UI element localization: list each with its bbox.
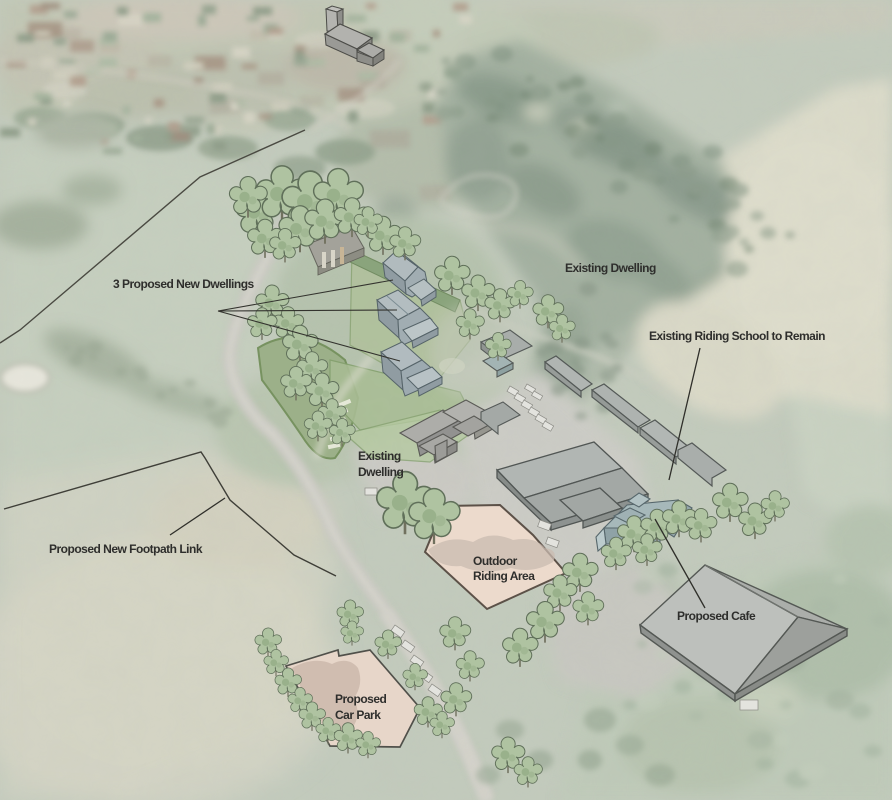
svg-text:Proposed: Proposed xyxy=(335,692,387,706)
svg-text:Dwelling: Dwelling xyxy=(358,465,404,479)
svg-text:Outdoor: Outdoor xyxy=(473,554,518,568)
svg-text:Proposed Cafe: Proposed Cafe xyxy=(677,609,756,623)
svg-text:Existing Dwelling: Existing Dwelling xyxy=(565,261,656,275)
svg-text:3 Proposed New Dwellings: 3 Proposed New Dwellings xyxy=(113,277,255,291)
svg-text:Car Park: Car Park xyxy=(335,708,381,722)
svg-text:Existing: Existing xyxy=(358,449,401,463)
svg-text:Proposed New Footpath Link: Proposed New Footpath Link xyxy=(49,542,203,556)
svg-text:Existing Riding School to Rema: Existing Riding School to Remain xyxy=(649,329,825,343)
svg-text:Riding Area: Riding Area xyxy=(473,569,535,583)
